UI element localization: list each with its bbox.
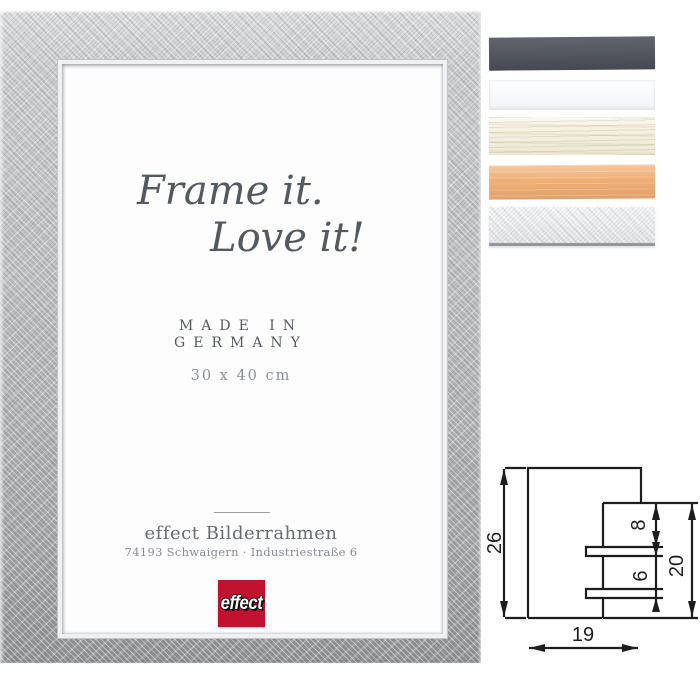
swatch-silver[interactable]	[489, 207, 655, 246]
headline-line-1: Frame it.	[137, 171, 324, 211]
profile-slot-lower	[586, 589, 663, 598]
germany-line: GERMANY	[70, 335, 412, 352]
swatch-white[interactable]	[489, 80, 655, 110]
frame-profile-drawing: 26 8 6 20 19	[480, 455, 700, 700]
dim-label-profile-width: 19	[572, 624, 594, 646]
made-in-line: MADE IN	[70, 318, 412, 335]
headline-line-2: Love it!	[210, 218, 365, 258]
company-address: 74193 Schwaigern · Industriestraße 6	[70, 545, 412, 559]
swatch-apricot[interactable]	[489, 164, 655, 199]
dim-label-rabbet-height: 20	[666, 555, 688, 577]
swatch-cream-wood[interactable]	[489, 117, 655, 155]
dim-label-total-height: 26	[484, 532, 506, 554]
dim-label-top-to-slot: 8	[628, 519, 650, 530]
divider-line	[214, 512, 270, 513]
swatch-anthracite[interactable]	[489, 36, 655, 70]
company-name: effect Bilderrahmen	[70, 523, 412, 544]
made-in-germany-label: MADE IN GERMANY	[70, 318, 412, 352]
profile-slot-upper	[586, 547, 663, 556]
size-label: 30 x 40 cm	[70, 368, 412, 384]
effect-logo: effect	[218, 580, 265, 627]
product-image: Frame it. Love it! MADE IN GERMANY 30 x …	[0, 0, 700, 700]
effect-logo-text: effect	[216, 593, 268, 615]
profile-outline	[528, 468, 641, 618]
dim-label-slot-gap: 6	[630, 570, 652, 581]
